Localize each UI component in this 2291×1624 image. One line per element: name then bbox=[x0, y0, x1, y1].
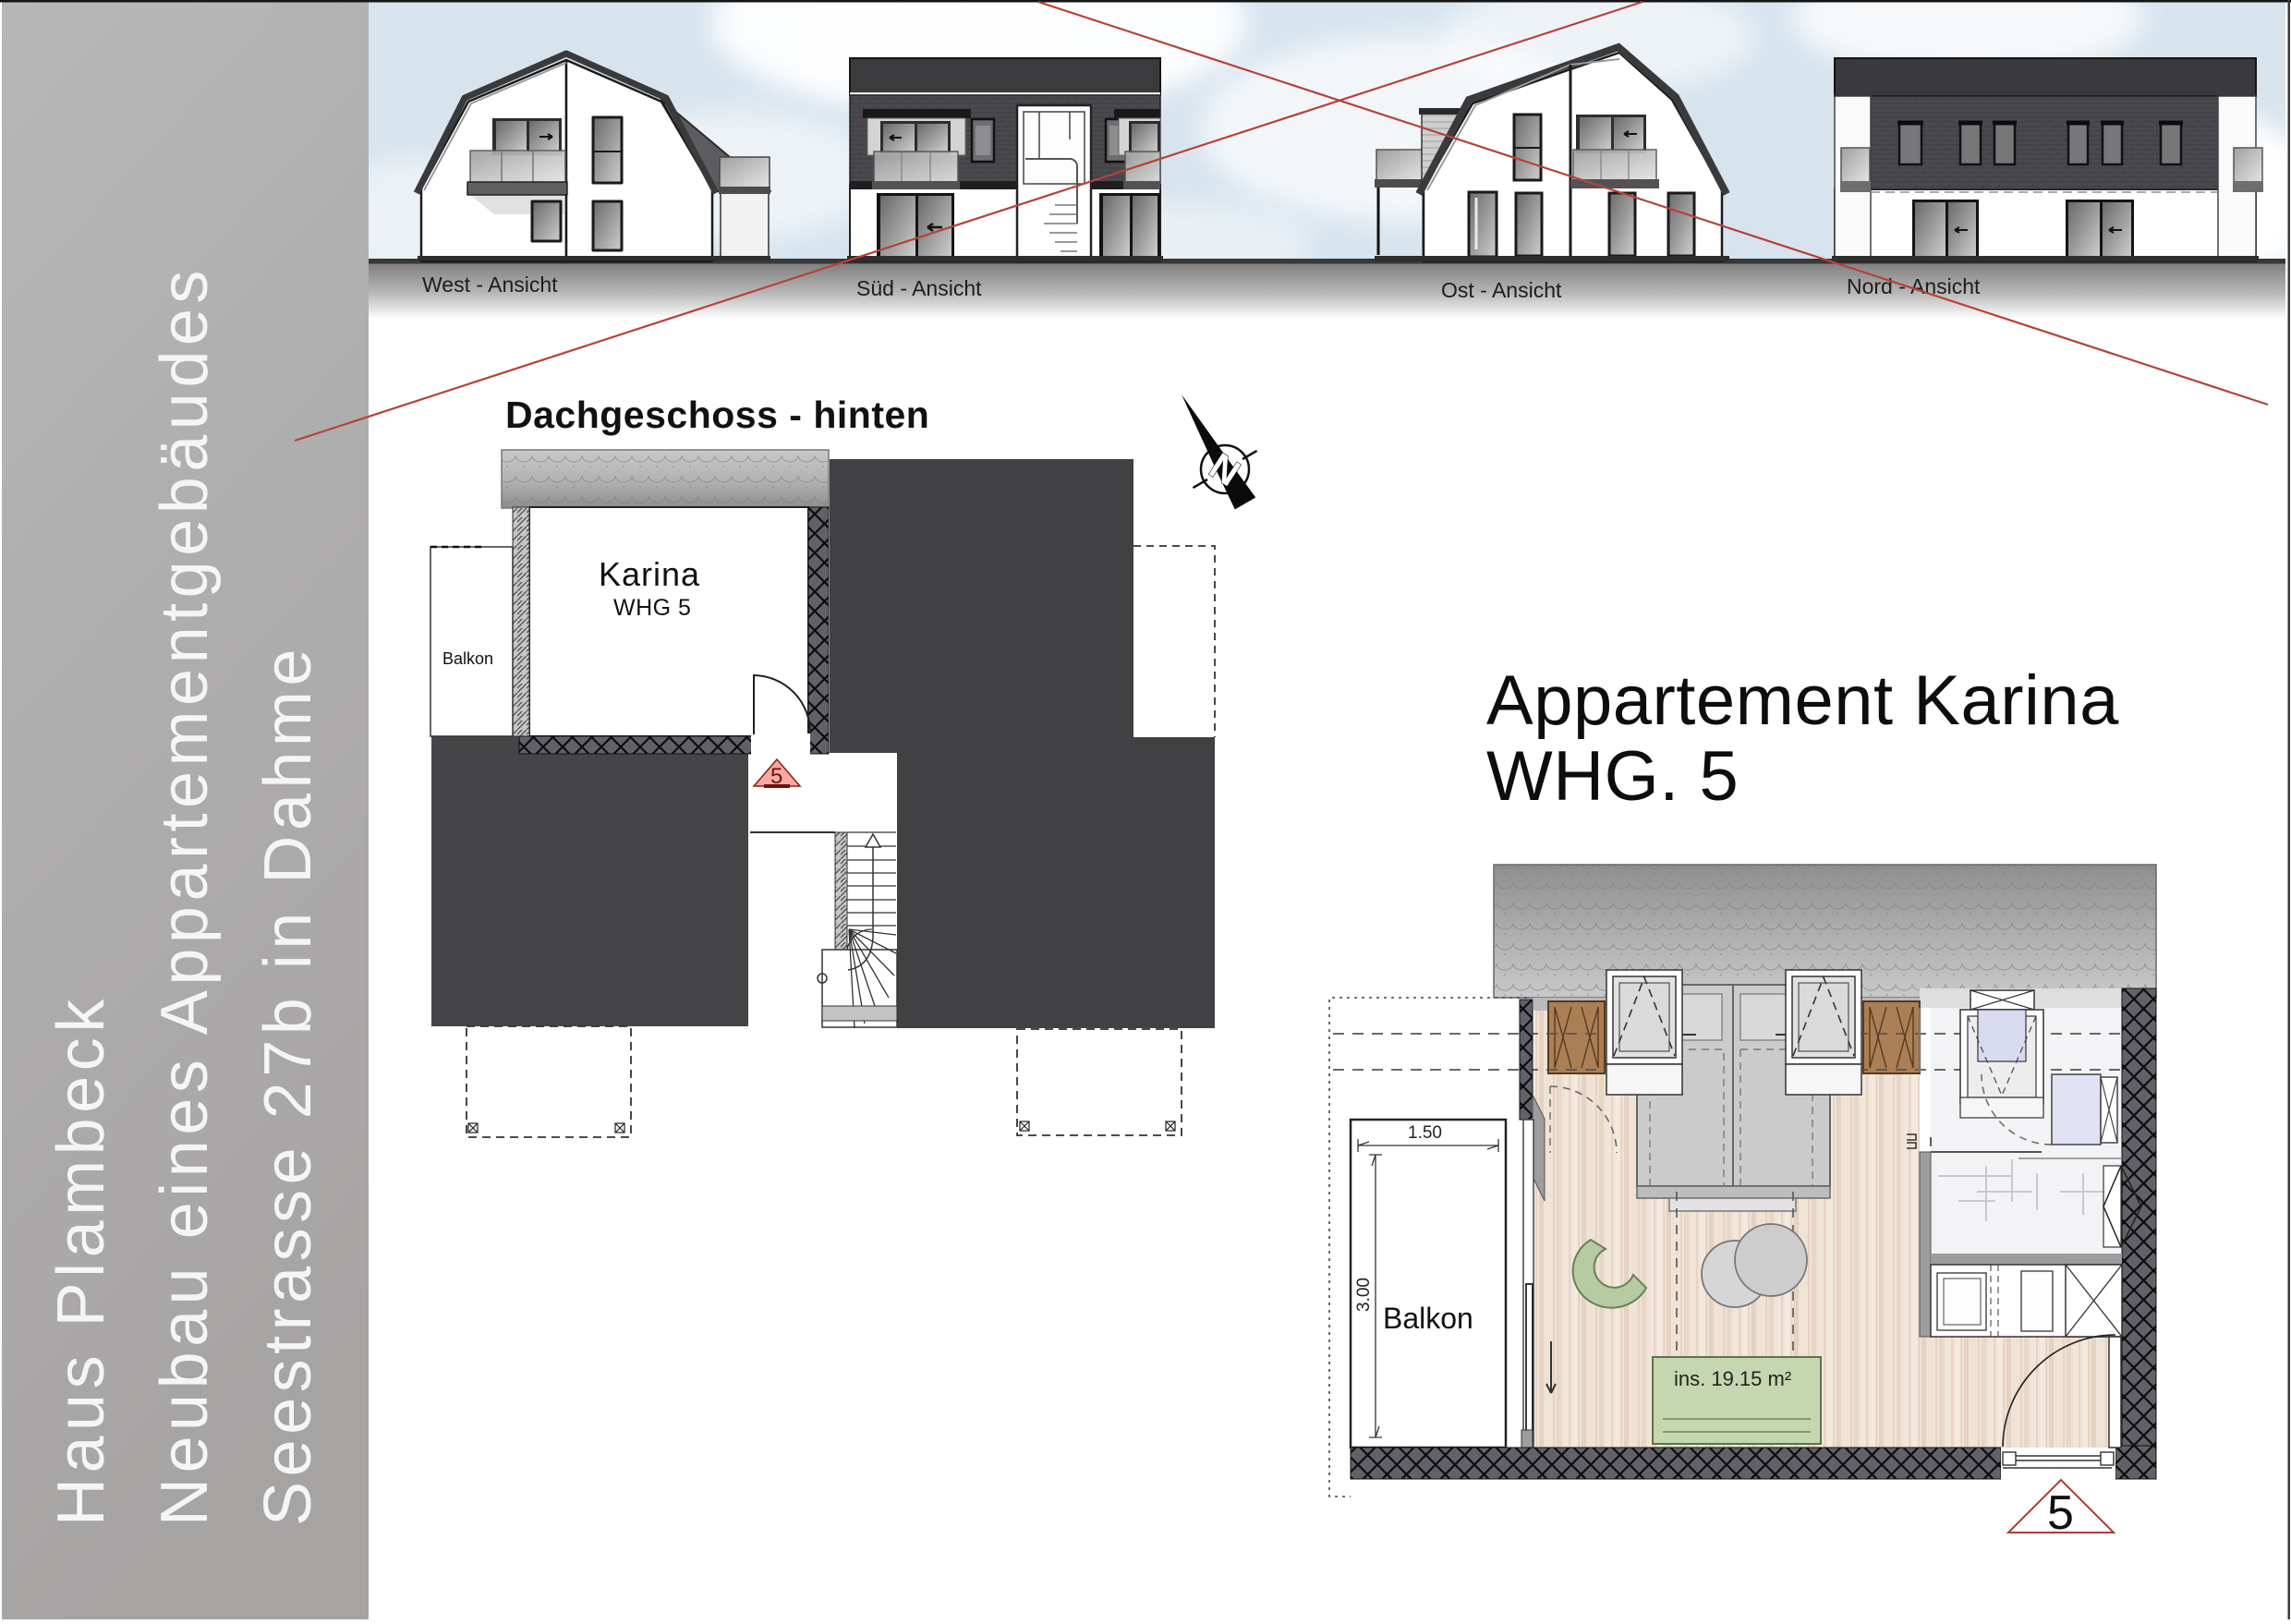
svg-text:Appartement Karina: Appartement Karina bbox=[1486, 661, 2119, 740]
svg-text:5: 5 bbox=[2047, 1486, 2074, 1540]
svg-text:Neubau eines Appartementgebäud: Neubau eines Appartementgebäudes bbox=[148, 265, 222, 1526]
svg-text:Balkon: Balkon bbox=[442, 649, 493, 668]
svg-text:Nord - Ansicht: Nord - Ansicht bbox=[1847, 274, 1981, 298]
svg-text:Seestrasse 27b in Dahme: Seestrasse 27b in Dahme bbox=[251, 644, 325, 1526]
svg-text:Karina: Karina bbox=[599, 555, 700, 593]
svg-text:Ost - Ansicht: Ost - Ansicht bbox=[1441, 278, 1562, 302]
svg-text:Dachgeschoss - hinten: Dachgeschoss - hinten bbox=[505, 394, 929, 436]
svg-text:Haus Plambeck: Haus Plambeck bbox=[44, 994, 118, 1526]
svg-text:ins. 19.15 m²: ins. 19.15 m² bbox=[1674, 1367, 1791, 1390]
svg-text:5: 5 bbox=[770, 764, 782, 789]
svg-text:1.50: 1.50 bbox=[1408, 1123, 1442, 1143]
svg-text:Süd - Ansicht: Süd - Ansicht bbox=[856, 276, 982, 300]
svg-text:WHG 5: WHG 5 bbox=[613, 595, 691, 621]
svg-text:WHG. 5: WHG. 5 bbox=[1486, 737, 1739, 816]
svg-text:West - Ansicht: West - Ansicht bbox=[422, 273, 558, 297]
svg-text:Balkon: Balkon bbox=[1383, 1302, 1473, 1335]
svg-text:3.00: 3.00 bbox=[1354, 1278, 1374, 1312]
